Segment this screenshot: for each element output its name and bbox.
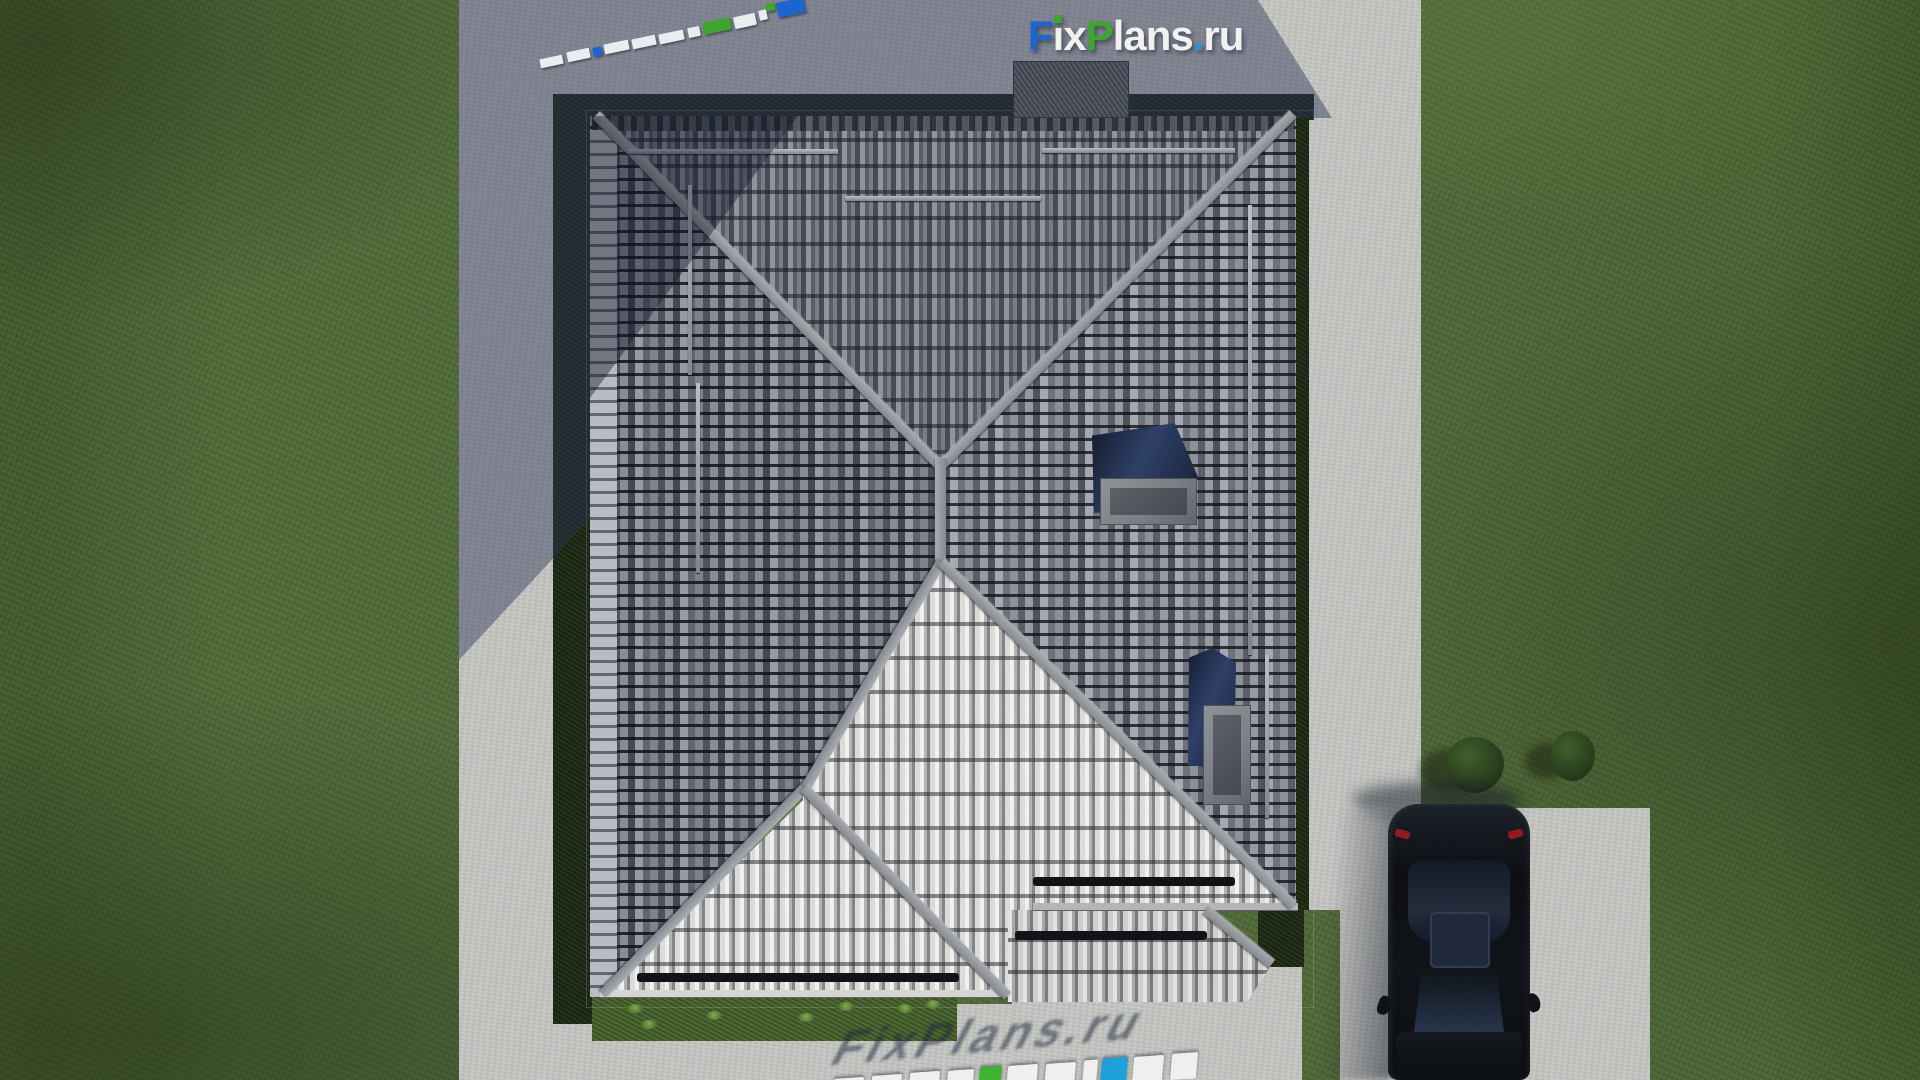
watermark-slab: [1006, 1064, 1038, 1080]
grass-tuft: [798, 1013, 814, 1022]
logo-letter: .: [1193, 12, 1204, 60]
brand-logo: FıxPlans.ru: [1028, 12, 1243, 62]
logo-letter: F: [1028, 12, 1053, 60]
skylight-1-frame: [1100, 478, 1197, 525]
chimney-top: [1013, 61, 1129, 118]
watermark-slab: [870, 1074, 902, 1080]
logo-letter: l: [1113, 12, 1124, 60]
ruler-segment: [592, 46, 603, 57]
skylight-1-frame-inner: [1110, 488, 1187, 515]
snow-rail: [1248, 205, 1252, 655]
parked-car: [1388, 804, 1530, 1080]
grass-tuft: [925, 1000, 941, 1009]
watermark-slab: [908, 1071, 940, 1080]
snow-rail: [845, 196, 1041, 201]
logo-letter: x: [1063, 12, 1085, 60]
watermark-slab: [1082, 1059, 1098, 1080]
gutter-bar: [1033, 877, 1235, 886]
snow-rail: [688, 185, 692, 375]
aerial-house-render: FıxPlans.ru FixPlans.ru: [0, 0, 1920, 1080]
roof-top-edge-tiles: [592, 116, 1294, 131]
skylight-2-frame: [1203, 705, 1251, 805]
watermark-slab: [1100, 1057, 1128, 1080]
logo-letter: n: [1146, 12, 1171, 60]
watermark-slab: [978, 1066, 1002, 1080]
car-windshield: [1414, 974, 1504, 1032]
logo-letter: r: [1203, 12, 1218, 60]
logo-letter: ı: [1053, 12, 1064, 60]
snow-rail: [628, 149, 838, 154]
watermark-slab: [1132, 1055, 1164, 1080]
car-sunroof: [1430, 912, 1490, 968]
gutter-bar: [637, 973, 959, 982]
grass-tuft: [897, 1004, 913, 1013]
roof-left-eave-tiles: [590, 130, 617, 997]
snow-rail: [1265, 655, 1269, 818]
logo-letter: u: [1219, 12, 1244, 60]
grass-tuft: [838, 1002, 854, 1011]
logo-i-dot: [1054, 15, 1062, 23]
grass-tuft: [706, 1011, 722, 1020]
logo-letter: P: [1086, 12, 1113, 60]
eave-fascia-porch: [600, 990, 1008, 998]
ridge-vertical: [935, 458, 946, 570]
gutter-bar: [1015, 931, 1207, 940]
watermark-slab: [1170, 1052, 1198, 1080]
logo-letter: s: [1170, 12, 1192, 60]
watermark-slab: [946, 1069, 974, 1080]
skylight-2-frame-inner: [1213, 715, 1241, 795]
snow-rail: [1042, 148, 1235, 153]
car-hood: [1396, 1032, 1522, 1080]
eave-fascia-east: [1033, 903, 1298, 911]
logo-letter: a: [1123, 12, 1145, 60]
concrete-path-right: [1309, 0, 1421, 910]
grass-tuft: [627, 1004, 643, 1013]
snow-rail: [696, 383, 700, 573]
watermark-slab: [1044, 1061, 1076, 1080]
grass-tuft: [641, 1020, 657, 1029]
